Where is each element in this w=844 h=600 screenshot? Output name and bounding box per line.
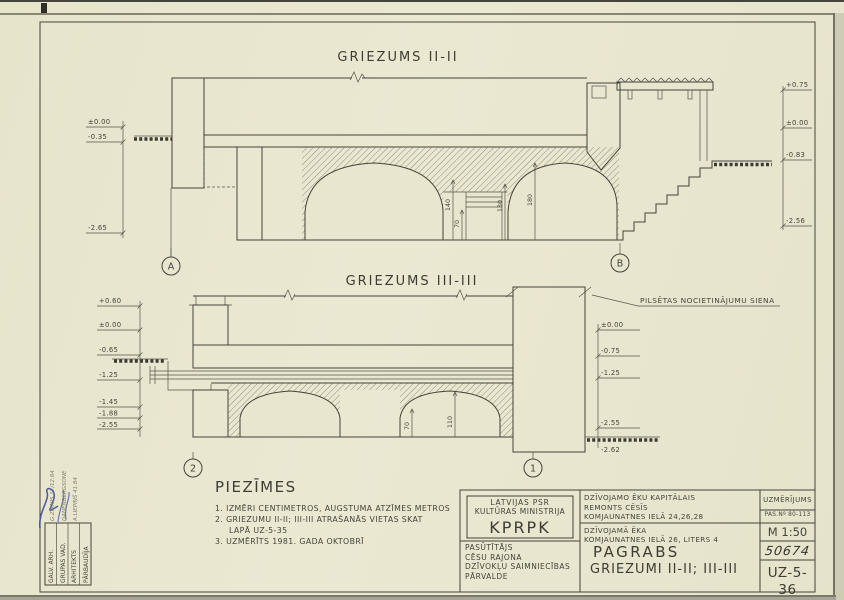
object-line: DZĪVOJAMĀ ĒKA [584, 526, 718, 535]
elevation-mark: -2.55 [601, 419, 620, 427]
elevation-ruler-right: ±0.00 -0.75 -1.25 -2.55 -2.62 [596, 321, 641, 454]
signature-entry: G.ZIRNIS 17/12.84 [50, 470, 57, 521]
ministry-line1: LATVIJAS PSR [467, 498, 573, 507]
dimension-label: 130 [497, 200, 504, 212]
elevation-mark: -1.25 [601, 369, 620, 377]
signature-entry: A.LIEPIŅŠ 41.84 [73, 477, 80, 521]
floor-slab-hatched [204, 135, 587, 147]
elevation-mark: -0.65 [99, 346, 118, 354]
client-line: CĒSU RAJONA [465, 553, 570, 563]
elevation-mark: ±0.00 [601, 321, 623, 329]
deck-sawtooth [617, 78, 713, 82]
fortification-wall-hatched [513, 287, 585, 452]
client-line: DZĪVOKĻU SAIMNIECĪBAS [465, 562, 570, 572]
signature-role-label: GALV. ARH. [48, 550, 56, 583]
section-title: GRIEZUMS II-II [337, 50, 458, 65]
dimension-label: 140 [445, 199, 452, 211]
dimension-label: 180 [527, 194, 534, 206]
scale-value: M 1:50 [760, 525, 815, 539]
notes-title: PIEZĪMES [215, 478, 450, 497]
break-symbol [284, 290, 467, 300]
dimension-label: 70 [454, 220, 461, 228]
left-wall-upper-hatched [193, 305, 228, 345]
titleblock-project: DZĪVOJAMO ĒKU KAPITĀLAIS REMONTS CĒSĪS K… [584, 493, 704, 522]
survey-type: UZMĒRĪJUMS [760, 496, 815, 505]
elevation-mark: -2.62 [601, 446, 620, 454]
axis-marker-label: 1 [530, 464, 536, 475]
sheet-number: UZ-5-36 [760, 565, 815, 599]
note-line: 3. UZMĒRĪTS 1981. GADA OKTOBRĪ [215, 536, 450, 547]
drawing-title-sub: GRIEZUMI II-II; III-III [590, 562, 738, 578]
section-II-II-drawing: 140 70 130 180 ±0.00 -0.35 -2.65 [86, 50, 812, 275]
elevation-ruler-left: +0.60 ±0.00 -0.65 -1.25 -1.45 -1.88 -2.5… [97, 297, 143, 437]
elevation-ruler-right: +0.75 ±0.00 -0.83 -2.56 [781, 81, 813, 230]
elevation-mark: -1.25 [99, 371, 118, 379]
note-line: LAPĀ UZ-5-35 [229, 525, 450, 536]
left-wall-lower-hatched [193, 390, 228, 437]
deck-post [628, 90, 632, 99]
drawing-title-main: PAGRABS [593, 543, 680, 562]
signature-role-label: GRUPAS VAD. [60, 542, 68, 583]
elevation-mark: -2.65 [88, 224, 107, 232]
elevation-mark: ±0.00 [88, 118, 110, 126]
archive-number: 50674 [759, 543, 816, 559]
elevation-mark: -2.56 [786, 217, 805, 225]
wall-label: PILSĒTAS NOCIETINĀJUMU SIENA [640, 296, 775, 305]
paper-sheet: 140 70 130 180 ±0.00 -0.35 -2.65 [0, 0, 844, 600]
dimension-label: 70 [404, 422, 411, 430]
window-sill-detail [150, 361, 211, 390]
titleblock-ministry: LATVIJAS PSR KULTŪRAS MINISTRIJA KPRPK [467, 498, 573, 538]
signature-entry: DANENBERGSONE [62, 471, 69, 521]
elevation-mark: +0.60 [99, 297, 121, 305]
break-symbol [506, 287, 591, 297]
organization-name: KPRPK [467, 518, 573, 538]
elevation-mark: ±0.00 [786, 119, 808, 127]
signature-role-label: PĀRBAUDĪJA [83, 546, 91, 583]
elevation-mark: +0.75 [786, 81, 808, 89]
project-line: KOMJAUNATNES IELĀ 24,26,28 [584, 512, 704, 522]
entrance-deck-hatched [617, 82, 713, 90]
elevation-mark: -0.35 [88, 133, 107, 141]
dimension-label: 110 [447, 416, 454, 428]
mid-pier-hatched [237, 147, 262, 240]
elevation-mark: -1.45 [99, 398, 118, 406]
elevation-mark: -0.83 [786, 151, 805, 159]
order-number: PAS.Nº 80-113 [760, 512, 815, 519]
note-line: 2. GRIEZUMU II-II; III-III ATRAŠANĀS VIE… [215, 514, 450, 525]
break-symbol [350, 72, 365, 82]
notes-block: PIEZĪMES 1. IZMĒRI CENTIMETROS, AUGSTUMA… [215, 478, 450, 547]
client-line: PĀRVALDE [465, 572, 570, 582]
deck-post [658, 90, 662, 99]
floor-board-lines [150, 371, 513, 379]
elevation-ruler-left: ±0.00 -0.35 -2.65 [86, 118, 126, 238]
elevation-mark: ±0.00 [99, 321, 121, 329]
elevation-mark: -0.75 [601, 347, 620, 355]
note-line: 1. IZMĒRI CENTIMETROS, AUGSTUMA ATZĪMES … [215, 503, 450, 514]
hidden-wall-dashed [204, 147, 237, 187]
titleblock-client: PASŪTĪTĀJS CĒSU RAJONA DZĪVOKĻU SAIMNIEC… [465, 543, 570, 581]
beam-pocket [592, 86, 606, 98]
staircase [619, 161, 772, 240]
signature-role-label: ARHITEKTS [71, 550, 79, 583]
project-line: DZĪVOJAMO ĒKU KAPITĀLAIS [584, 493, 704, 503]
deck-post [688, 90, 692, 99]
axis-marker-label: B [617, 259, 624, 270]
ministry-line2: KULTŪRAS MINISTRIJA [467, 507, 573, 516]
elevation-mark: -2.55 [99, 421, 118, 429]
client-label: PASŪTĪTĀJS [465, 543, 570, 553]
section-title: GRIEZUMS III-III [346, 274, 479, 289]
floor-slab-hatched [193, 345, 513, 368]
elevation-mark: -1.88 [99, 410, 118, 418]
axis-marker-label: A [168, 262, 175, 273]
section-III-III-drawing: 70 110 PILSĒTAS NOCIETINĀJUMU SIENA +0.6… [97, 274, 780, 477]
project-line: REMONTS CĒSĪS [584, 503, 704, 513]
axis-marker-label: 2 [190, 464, 196, 475]
titleblock-object: DZĪVOJAMĀ ĒKA KOMJAUNATNES IELĀ 26, LITE… [584, 526, 718, 544]
left-wall-hatched [172, 78, 204, 188]
